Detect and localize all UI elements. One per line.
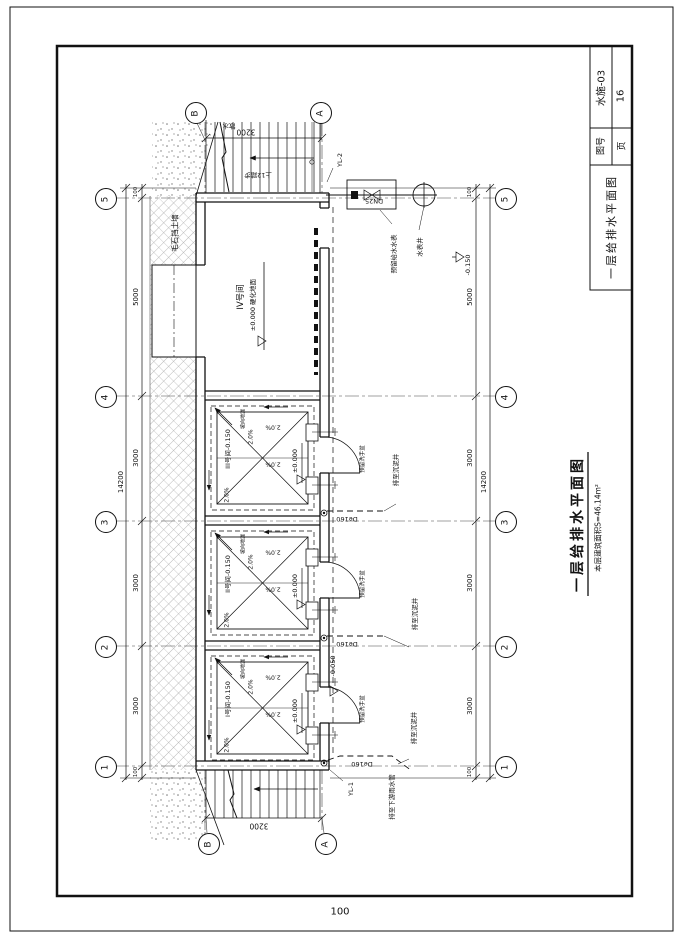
to-silt-well-label-3: 排至沉泥井 bbox=[408, 712, 418, 745]
to-rain-pipe-label: 排至下游雨水管 bbox=[386, 774, 396, 820]
pipe-size-label: DN25 bbox=[365, 197, 383, 205]
axis-left-3-label: 3 bbox=[101, 519, 110, 525]
axis-right-2-label: 2 bbox=[501, 644, 510, 650]
axis-bottom-b: B bbox=[198, 833, 220, 855]
axis-bottom-a: A bbox=[315, 833, 337, 855]
axis-left-1-label: 1 bbox=[101, 764, 110, 770]
room2-datum: ±0.000 bbox=[291, 574, 299, 598]
axis-right-1-label: 1 bbox=[501, 764, 510, 770]
room3-slope-sw: 2.0% bbox=[224, 487, 231, 502]
axis-left-4: 4 bbox=[95, 386, 117, 408]
room1-datum: ±0.000 bbox=[291, 699, 299, 723]
dim-right-2: 3000 bbox=[466, 449, 474, 467]
axis-right-4-label: 4 bbox=[501, 394, 510, 400]
room1-slope-note: 坡向地漏 bbox=[240, 659, 247, 679]
rain-leader-2-label: YL-2 bbox=[336, 153, 344, 167]
room1-door-note: 预留洗手盆 bbox=[358, 695, 366, 723]
axis-right-2: 2 bbox=[495, 636, 517, 658]
dim-left-total: 14200 bbox=[117, 471, 125, 493]
axis-left-1: 1 bbox=[95, 756, 117, 778]
rain-leader-1-label: YL-1 bbox=[347, 782, 355, 796]
drain-size-label-1: De160 bbox=[336, 515, 357, 523]
room2-slope-se: 2.0% bbox=[265, 586, 280, 593]
titleblock-no-label: 图号 bbox=[594, 137, 607, 155]
titleblock-page-no: 16 bbox=[616, 90, 627, 103]
outdoor-level-label: -0.150 bbox=[464, 255, 472, 276]
axis-top-b: B bbox=[185, 102, 207, 124]
dim-left-1: 5000 bbox=[132, 288, 140, 306]
stair-note: 上12踏步 bbox=[244, 171, 272, 181]
apron-label: 散水 bbox=[223, 122, 236, 132]
axis-right-3: 3 bbox=[495, 511, 517, 533]
retaining-wall-label: 毛石挡土墙 bbox=[170, 214, 181, 252]
room3-slope-note: 坡向地漏 bbox=[240, 409, 247, 429]
axis-left-2-label: 2 bbox=[101, 644, 110, 650]
room3-tag: III号间-0.150 bbox=[222, 429, 232, 469]
room2-slope-sw: 2.0% bbox=[224, 612, 231, 627]
room2-tag: II号间-0.150 bbox=[222, 555, 232, 593]
drawing-title: 一层给排水平面图 bbox=[567, 456, 587, 592]
dim-left-5: 100 bbox=[133, 767, 139, 778]
dim-right-4: 3000 bbox=[466, 697, 474, 715]
reserved-meter-label: 预留给水水表 bbox=[388, 235, 398, 274]
drawing-area-note: 本层建筑面积S=46.14m² bbox=[593, 484, 604, 572]
axis-left-3: 3 bbox=[95, 511, 117, 533]
room3-datum: ±0.000 bbox=[291, 449, 299, 473]
drawing-sheet: 水施-03 16 图号 页 一层给排水平面图 一层给排水平面图 本层建筑面积S=… bbox=[0, 0, 683, 938]
axis-left-5: 5 bbox=[95, 188, 117, 210]
axis-bottom-a-label: A bbox=[321, 841, 330, 847]
room2-slope-nw: 2.0% bbox=[248, 554, 255, 569]
to-silt-well-label-2: 排至沉泥井 bbox=[409, 598, 419, 631]
room2-door-note: 预留洗手盆 bbox=[358, 570, 366, 598]
axis-top-b-label: B bbox=[192, 110, 201, 116]
axis-right-5: 5 bbox=[495, 188, 517, 210]
axis-right-1: 1 bbox=[495, 756, 517, 778]
room1-slope-ne: 2.0% bbox=[265, 674, 280, 681]
dim-left-2: 3000 bbox=[132, 449, 140, 467]
axis-bottom-b-label: B bbox=[205, 841, 214, 847]
room1-slope-sw: 2.0% bbox=[224, 737, 231, 752]
entry-level-label: -0.050 bbox=[329, 656, 337, 677]
room3-slope-nw: 2.0% bbox=[248, 429, 255, 444]
axis-right-5-label: 5 bbox=[501, 196, 510, 202]
drain-size-label-3: De160 bbox=[351, 760, 372, 768]
room3-slope-ne: 2.0% bbox=[265, 424, 280, 431]
dim-right-total: 14200 bbox=[480, 471, 488, 493]
dim-bottom-width: 3200 bbox=[249, 822, 268, 831]
dim-right-3: 3000 bbox=[466, 574, 474, 592]
axis-top-a: A bbox=[310, 102, 332, 124]
meter-well-label: 水表井 bbox=[414, 237, 424, 257]
room3-door-note: 预留洗手盆 bbox=[358, 445, 366, 473]
titleblock-drawing-no: 水施-03 bbox=[593, 70, 608, 106]
axis-left-5-label: 5 bbox=[101, 196, 110, 202]
titleblock-title: 一层给排水平面图 bbox=[603, 175, 619, 279]
room1-slope-nw: 2.0% bbox=[248, 679, 255, 694]
dim-right-5: 100 bbox=[467, 767, 473, 778]
axis-right-3-label: 3 bbox=[501, 519, 510, 525]
axis-left-4-label: 4 bbox=[101, 394, 110, 400]
axis-right-4: 4 bbox=[495, 386, 517, 408]
axis-left-2: 2 bbox=[95, 636, 117, 658]
dim-right-0: 100 bbox=[467, 187, 473, 198]
room2-slope-note: 坡向地漏 bbox=[240, 534, 247, 554]
titleblock-page-label: 页 bbox=[615, 141, 628, 150]
room3-slope-se: 2.0% bbox=[265, 461, 280, 468]
room1-slope-se: 2.0% bbox=[265, 711, 280, 718]
dim-right-1: 5000 bbox=[466, 288, 474, 306]
dim-top-width: 3200 bbox=[236, 128, 255, 137]
drain-size-label-2: De160 bbox=[336, 640, 357, 648]
room2-slope-ne: 2.0% bbox=[265, 549, 280, 556]
room4-level: ±0.000 硬化地面 bbox=[247, 279, 257, 331]
dim-left-0: 100 bbox=[133, 187, 139, 198]
dim-left-3: 3000 bbox=[132, 574, 140, 592]
room4-tag: IV号间 bbox=[234, 284, 246, 309]
dim-left-4: 3000 bbox=[132, 697, 140, 715]
axis-top-a-label: A bbox=[316, 110, 325, 116]
page-number: 100 bbox=[330, 907, 349, 918]
to-silt-well-label-1: 排至沉泥井 bbox=[390, 454, 400, 487]
room1-tag: I号间-0.150 bbox=[222, 681, 232, 717]
